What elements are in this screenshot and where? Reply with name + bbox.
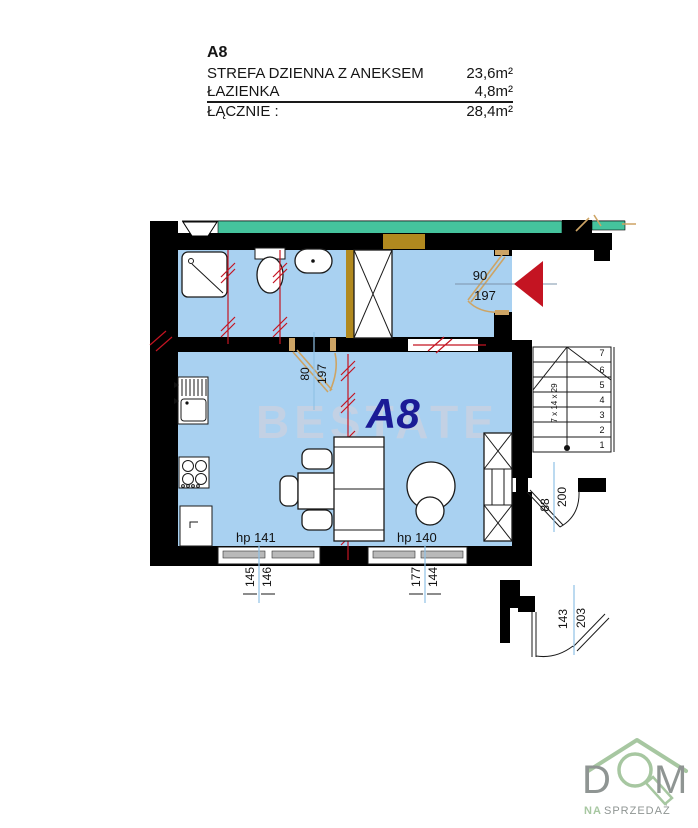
stair-step-5: 5: [599, 380, 604, 390]
kitchen-sink: [174, 377, 208, 424]
area-row-total: ŁĄCZNIE : 28,4m²: [207, 103, 513, 121]
window-right-label: hp 140: [397, 530, 437, 545]
window-left-dim-b: 146: [260, 567, 274, 587]
stair-formula: 7 x 14 x 29: [550, 383, 559, 423]
chair: [280, 476, 298, 506]
hall-wall-opening: [408, 337, 486, 353]
window-right-dim-a: 177: [409, 567, 423, 587]
logo-letter-d: D: [582, 758, 611, 802]
entry-door-width-dim: 90: [473, 268, 487, 283]
window-left-dim-a: 145: [243, 567, 257, 587]
window-right-dim-b: 144: [426, 567, 440, 587]
area-table-unit: A8: [207, 44, 513, 62]
area-row-label: ŁĄCZNIE :: [207, 103, 279, 121]
washbasin: [295, 249, 332, 273]
chair: [302, 510, 332, 530]
stair-step-2: 2: [599, 425, 604, 435]
wardrobe: [484, 433, 512, 541]
lower-door-height-dim: 203: [574, 608, 588, 628]
lower-door-width-dim: 143: [556, 609, 570, 629]
area-row-value: 23,6m²: [466, 65, 513, 83]
area-row-value: 4,8m²: [475, 83, 513, 101]
bathroom-door-height-dim: 197: [315, 364, 329, 384]
area-row-living: STREFA DZIENNA Z ANEKSEM 23,6m²: [207, 65, 513, 83]
entrance-arrow-icon: [514, 261, 543, 307]
area-table: A8 STREFA DZIENNA Z ANEKSEM 23,6m² ŁAZIE…: [207, 44, 513, 121]
agency-logo: D M NA SPRZEDAŻ: [582, 740, 687, 817]
area-row-label: STREFA DZIENNA Z ANEKSEM: [207, 65, 424, 83]
logo-tagline-accent: NA: [584, 805, 602, 817]
stair-door-height-dim: 200: [555, 487, 569, 507]
logo-tagline-rest: SPRZEDAŻ: [604, 804, 671, 817]
area-row-label: ŁAZIENKA: [207, 83, 280, 101]
window-left-label: hp 141: [236, 530, 276, 545]
entry-door-height-dim: 197: [474, 288, 496, 303]
shower-tray: [182, 252, 227, 297]
stair-step-7: 7: [599, 348, 604, 358]
stair-step-6: 6: [599, 365, 604, 375]
unit-label: A8: [365, 390, 420, 437]
stair-door-width-dim: 88: [538, 498, 552, 512]
dining-table: [298, 473, 336, 509]
building-entry-door: 143 203: [500, 580, 609, 657]
wall-cabinet: [383, 234, 425, 249]
area-row-value: 28,4m²: [466, 103, 513, 121]
chair: [302, 449, 332, 469]
stair-step-1: 1: [599, 440, 604, 450]
area-row-bathroom: ŁAZIENKA 4,8m²: [207, 83, 513, 103]
hob: [179, 457, 209, 488]
stair-step-3: 3: [599, 410, 604, 420]
sofa: [334, 437, 384, 541]
stair-step-4: 4: [599, 395, 604, 405]
floorplan-page: BESTATE A8 80 19: [0, 0, 698, 828]
floorplan-drawing: BESTATE A8 80 19: [0, 0, 698, 828]
bathroom-door-width-dim: 80: [298, 367, 312, 381]
kitchen-counter: [180, 506, 212, 546]
staircase: 7 6 5 4 3 2 1 7 x 14 x 29: [533, 347, 614, 452]
duct-shaft: [346, 250, 392, 338]
logo-letter-m: M: [654, 758, 687, 802]
